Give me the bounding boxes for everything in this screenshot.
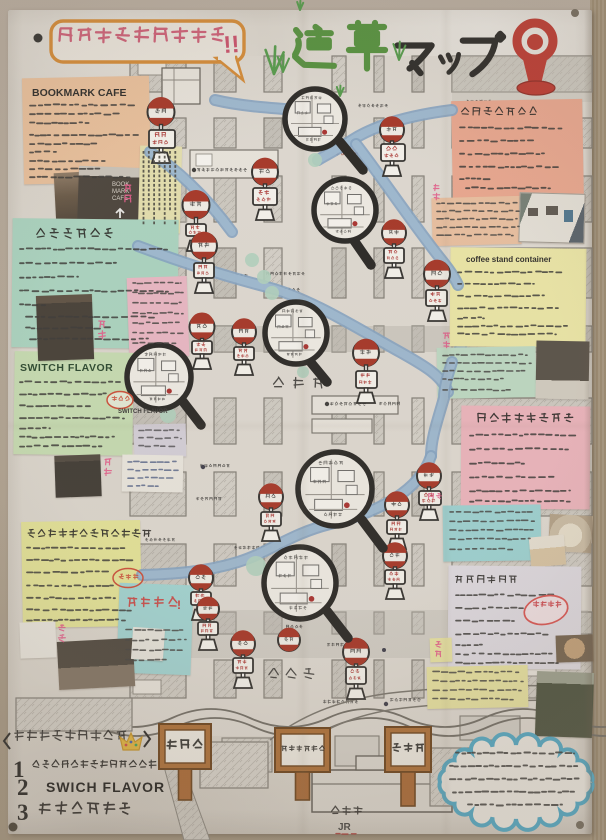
svg-text:!!: !! [223,31,241,59]
svg-text:2: 2 [17,775,29,800]
svg-text:MARK: MARK [112,189,129,195]
svg-text:BOOKMARK CAFE: BOOKMARK CAFE [32,87,127,99]
svg-text:!: ! [177,598,181,612]
svg-text:SWITCH FLAVOR: SWITCH FLAVOR [20,362,113,374]
svg-text:SWITCH FLAVOR: SWITCH FLAVOR [118,409,168,415]
svg-text:3: 3 [17,800,29,825]
svg-text:coffee stand container: coffee stand container [466,255,551,264]
svg-text:SWICH FLAVOR: SWICH FLAVOR [46,779,165,795]
